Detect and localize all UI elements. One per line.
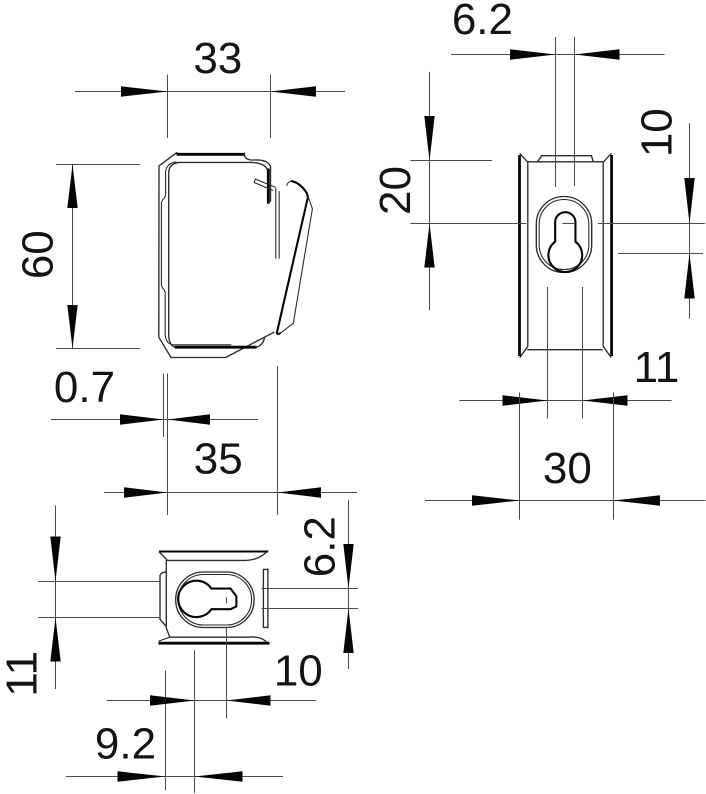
svg-text:6.2: 6.2 — [452, 0, 513, 44]
svg-text:60: 60 — [14, 230, 63, 279]
svg-text:35: 35 — [194, 435, 243, 484]
svg-text:20: 20 — [371, 166, 420, 215]
svg-text:10: 10 — [632, 108, 681, 157]
svg-text:6.2: 6.2 — [296, 516, 345, 577]
svg-text:30: 30 — [543, 444, 592, 493]
svg-text:9.2: 9.2 — [95, 720, 156, 769]
svg-text:33: 33 — [193, 34, 242, 83]
svg-text:11: 11 — [634, 343, 680, 392]
svg-text:11: 11 — [0, 651, 46, 697]
svg-text:10: 10 — [274, 647, 323, 696]
svg-text:0.7: 0.7 — [54, 363, 115, 412]
